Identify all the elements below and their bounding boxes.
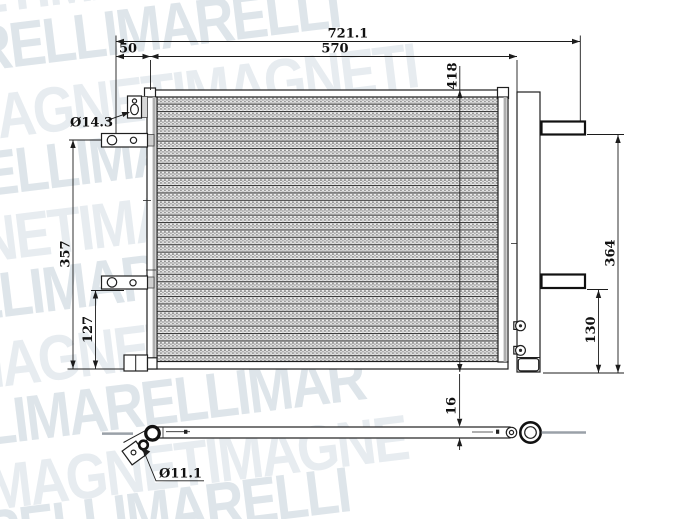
dim-label-11-1: Ø11.1 xyxy=(159,467,202,482)
dim-label-721: 721.1 xyxy=(328,27,369,42)
upper-left-bracket xyxy=(102,134,155,148)
tank-bottom-cap xyxy=(518,359,538,371)
dim-label-364: 364 xyxy=(604,239,619,266)
dim-label-418: 418 xyxy=(446,62,461,89)
dim-label-570: 570 xyxy=(321,42,348,57)
detail-mark-left xyxy=(184,430,187,434)
bottom-left-block xyxy=(124,355,157,371)
dim-label-130: 130 xyxy=(584,316,599,343)
left-large-ring xyxy=(146,427,160,441)
top-left-mounting-bracket xyxy=(128,96,148,118)
front-view xyxy=(102,88,586,373)
tank-port-upper xyxy=(514,321,526,331)
condenser-drawing: 721.1 50 570 418 357 127 364 xyxy=(0,0,680,519)
dim-label-127: 127 xyxy=(81,316,96,343)
technical-drawing-page: NETIMAGNETIMAG MARELLIMARELLI MAGNETIMAG… xyxy=(0,0,680,519)
dim-label-357: 357 xyxy=(59,240,74,267)
dim-label-14-3: Ø14.3 xyxy=(70,116,113,131)
middle-left-bracket xyxy=(102,276,155,289)
lower-pipe-connector xyxy=(542,275,586,289)
hole-11-1-ring xyxy=(139,441,148,450)
dim-right-lower-130: 130 xyxy=(584,290,608,373)
condenser-core-fins xyxy=(157,97,498,362)
left-end-fitting xyxy=(122,427,159,465)
dim-depth-16: 16 xyxy=(445,374,463,450)
dim-label-50: 50 xyxy=(119,42,137,57)
right-end-fitting xyxy=(506,422,586,442)
side-view xyxy=(102,422,586,465)
bottom-plate xyxy=(147,362,508,370)
side-profile-bar xyxy=(150,427,510,438)
right-tank xyxy=(514,92,540,372)
upper-pipe-connector xyxy=(542,122,586,135)
top-plate xyxy=(147,90,508,97)
dim-label-16: 16 xyxy=(445,397,460,415)
dim-hole-11-1: Ø11.1 xyxy=(143,448,204,482)
detail-mark-right xyxy=(496,430,499,434)
tank-port-lower xyxy=(514,346,526,356)
bracket-hole-14-3 xyxy=(131,104,139,114)
dim-left-lower-127: 127 xyxy=(81,291,124,369)
dim-hole-14-3: Ø14.3 xyxy=(70,112,130,131)
